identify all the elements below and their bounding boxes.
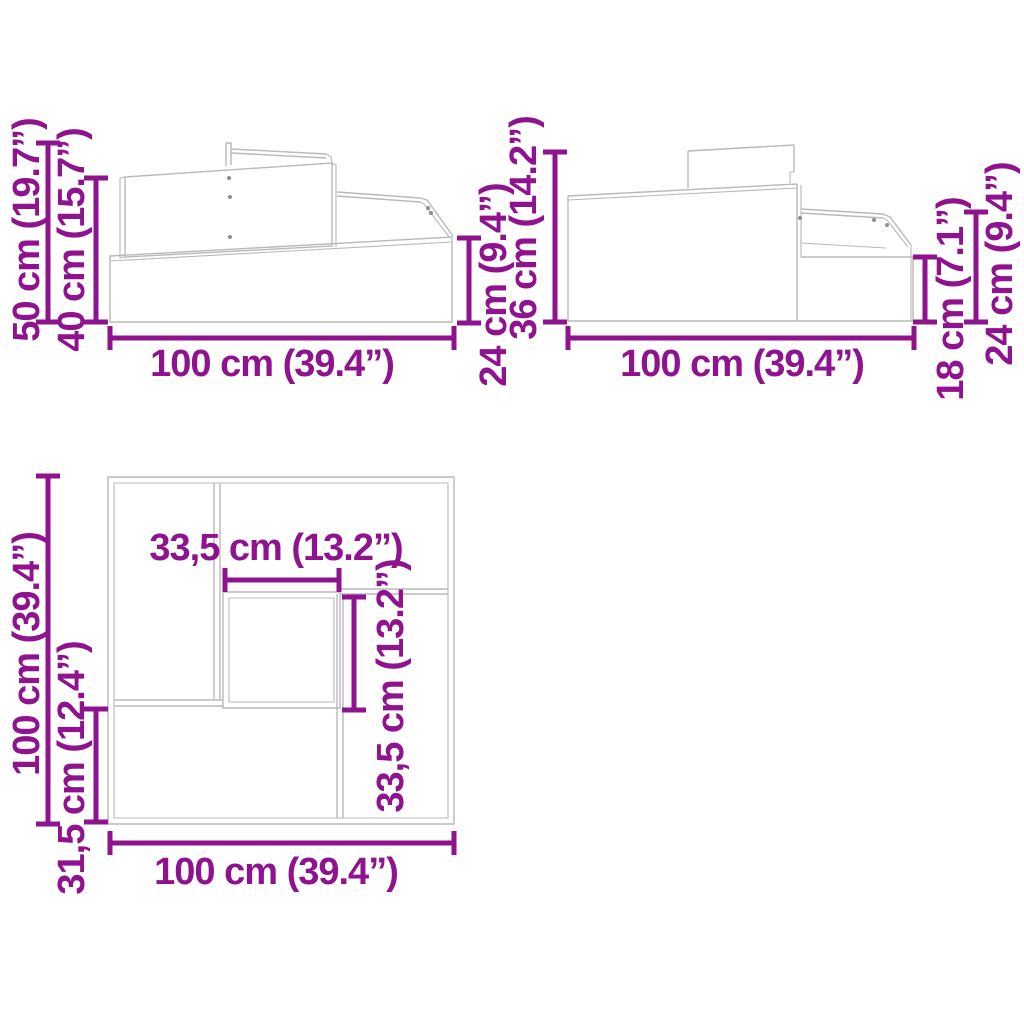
dim-label-right-view-left-height: 36 cm (14.2”): [505, 116, 543, 340]
dim-label-left-view-mid-height: 40 cm (15.7”): [53, 128, 91, 352]
dim-label-left-view-width: 100 cm (39.4”): [150, 345, 394, 383]
dim-label-top-view-inner-depth: 33,5 cm (13.2”): [372, 559, 410, 812]
dim-label-right-view-step-height: 18 cm (7.1”): [932, 197, 970, 400]
dim-label-right-view-width: 100 cm (39.4”): [620, 345, 864, 383]
dim-label-top-view-depth: 100 cm (39.4”): [8, 532, 46, 776]
dimension-diagram: 50 cm (19.7”) 40 cm (15.7”) 24 cm (9.4”)…: [0, 0, 1024, 1024]
side-view-left-drawing: [110, 143, 453, 322]
dim-label-left-view-total-height: 50 cm (19.7”): [8, 118, 46, 342]
side-view-right-drawing: [568, 145, 913, 321]
dim-label-top-view-width: 100 cm (39.4”): [154, 853, 398, 891]
dim-label-right-view-right-height: 24 cm (9.4”): [981, 162, 1019, 365]
dim-label-top-view-inner-width: 33,5 cm (13.2”): [149, 529, 402, 567]
dim-label-top-view-lower-section-depth: 31,5 cm (12.4”): [53, 641, 91, 894]
